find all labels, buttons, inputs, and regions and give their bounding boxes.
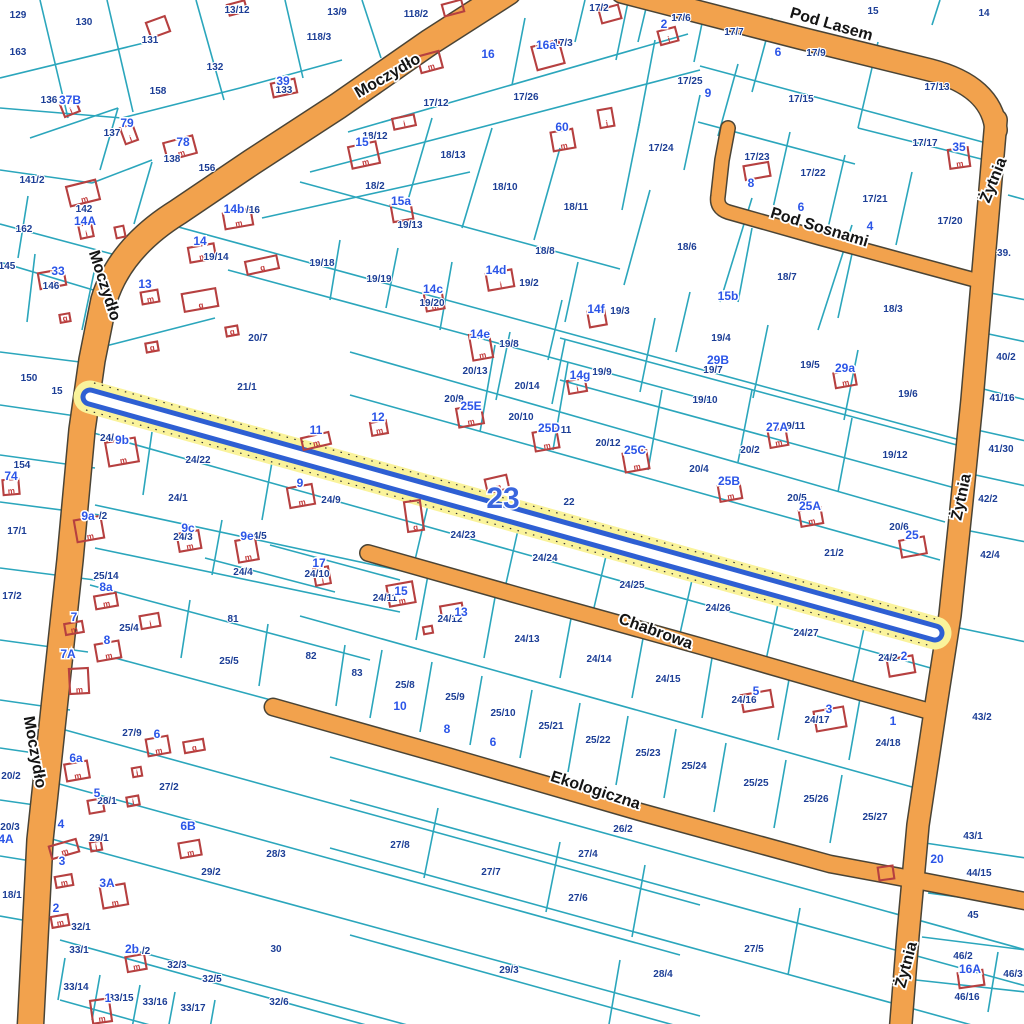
parcel-number-label: 29/1 <box>89 833 109 844</box>
parcel-number-label: 24/4 <box>233 567 253 578</box>
parcel-number-label: 17/1 <box>7 526 27 537</box>
parcel-number-label: 25/8 <box>395 680 415 691</box>
parcel-number-label: 27/7 <box>481 867 501 878</box>
building-number-label: 9 <box>297 476 304 490</box>
building-number-label: 14A <box>74 214 96 228</box>
parcel-number-label: 21/1 <box>237 382 257 393</box>
parcel-number-label: 19/10 <box>692 395 717 406</box>
parcel-number-label: 42/2 <box>978 494 998 505</box>
parcel-number-label: 43/1 <box>963 831 983 842</box>
parcel-number-label: 145 <box>0 261 16 272</box>
building-number-label: 35 <box>952 140 966 154</box>
parcel-number-label: 25/21 <box>538 721 563 732</box>
building-number-label: 13 <box>138 277 152 291</box>
parcel-number-label: 25/5 <box>219 656 239 667</box>
parcel-number-label: 19/13 <box>397 220 422 231</box>
building-number-label: 16a <box>536 38 556 52</box>
parcel-number-label: 33/16 <box>142 997 167 1008</box>
building-number-label: 16A <box>959 962 981 976</box>
building-number-label: 4 <box>867 219 874 233</box>
building-number-label: 8 <box>748 176 755 190</box>
building-number-label: 29a <box>835 361 855 375</box>
building-number-label: 6a <box>69 751 83 765</box>
parcel-number-label: 24/24 <box>532 553 557 564</box>
parcel-number-label: 27/2 <box>159 782 179 793</box>
parcel-number-label: 118/2 <box>404 9 429 20</box>
parcel-number-label: 17/7 <box>724 27 744 38</box>
parcel-number-label: 19/14 <box>203 252 228 263</box>
building-number-label: 9a <box>81 509 95 523</box>
building-number-label: 1 <box>105 991 112 1005</box>
building-number-label: 9b <box>115 433 129 447</box>
parcel-number-label: 46/2 <box>953 951 973 962</box>
building-number-label: 11 <box>310 423 323 437</box>
parcel-number-label: 158 <box>150 86 167 97</box>
parcel-number-label: 24/9 <box>321 495 341 506</box>
building-outline: i <box>132 767 143 778</box>
building-outline <box>423 626 433 634</box>
parcel-number-label: /2 <box>99 511 108 522</box>
parcel-number-label: 33/17 <box>180 1003 205 1014</box>
building-number-label: 3A <box>99 876 115 890</box>
building-number-label: 25C <box>624 443 646 457</box>
parcel-number-label: 141/2 <box>19 175 44 186</box>
parcel-number-label: 20/7 <box>248 333 268 344</box>
building-number-label: 3 <box>826 702 833 716</box>
parcel-number-label: 19/6 <box>898 389 918 400</box>
parcel-number-label: 40/2 <box>996 352 1016 363</box>
parcel-number-label: 25/27 <box>862 812 887 823</box>
building-function-letter: m <box>7 486 15 496</box>
parcel-number-label: 83 <box>351 668 363 679</box>
parcel-number-label: 19/3 <box>610 306 630 317</box>
parcel-number-label: 25/22 <box>585 735 610 746</box>
cadastral-map[interactable]: iimmimmggggmimimimmmgmimmmmmmmmmmmmmmmmi… <box>0 0 1024 1024</box>
building-number-label: 3 <box>59 854 66 868</box>
building-number-label: 6 <box>775 45 782 59</box>
parcel-number-label: 29/2 <box>201 867 221 878</box>
parcel-number-label: 18/3 <box>883 304 903 315</box>
building-number-label: 2b <box>125 942 139 956</box>
parcel-number-label: 138 <box>164 154 181 165</box>
parcel-number-label: 19/20 <box>419 298 444 309</box>
parcel-number-label: 26/2 <box>613 824 633 835</box>
parcel-number-label: 27/5 <box>744 944 764 955</box>
parcel-number-label: 45 <box>967 910 979 921</box>
building-number-label: 39 <box>276 74 290 88</box>
parcel-number-label: 17/20 <box>937 216 962 227</box>
parcel-number-label: 32/6 <box>269 997 289 1008</box>
building-number-label: 16 <box>481 47 495 61</box>
parcel-number-label: 25/25 <box>743 778 768 789</box>
parcel-number-label: 46/3 <box>1003 969 1023 980</box>
building-number-label: 14 <box>193 234 207 248</box>
parcel-number-label: 46/16 <box>954 992 979 1003</box>
parcel-number-label: 24/23 <box>450 530 475 541</box>
building-function-letter: m <box>76 685 84 694</box>
building-number-label: 74 <box>4 469 18 483</box>
parcel-number-label: 20/4 <box>689 464 709 475</box>
building-number-label: 7A <box>60 647 76 661</box>
building-number-label: 12 <box>371 410 385 424</box>
parcel-number-label: 17/26 <box>513 92 538 103</box>
parcel-number-label: 82 <box>305 651 317 662</box>
building-number-label: 2 <box>53 901 60 915</box>
parcel-number-label: 136 <box>41 95 58 106</box>
parcel-number-label: 13/9 <box>327 7 347 18</box>
parcel-number-label: 27/4 <box>578 849 598 860</box>
parcel-number-label: 118/3 <box>307 32 332 43</box>
building-number-label: 15 <box>355 135 369 149</box>
parcel-number-label: 24/17 <box>804 715 829 726</box>
parcel-number-label: 130 <box>76 17 93 28</box>
parcel-number-label: 22 <box>563 497 575 508</box>
parcel-number-label: 29/3 <box>499 965 519 976</box>
parcel-number-label: 11 <box>561 425 572 436</box>
building-number-label: 25D <box>538 421 560 435</box>
parcel-number-label: 20/2 <box>740 445 760 456</box>
parcel-number-label: 25/23 <box>635 748 660 759</box>
building-number-label: 25B <box>718 474 740 488</box>
building-function-letter: m <box>98 1014 106 1024</box>
parcel-number-label: 27/6 <box>568 893 588 904</box>
building-number-label: 79 <box>120 116 134 130</box>
parcel-number-label: 129 <box>10 10 27 21</box>
parcel-number-label: 163 <box>10 47 27 58</box>
parcel-number-label: 17/24 <box>648 143 673 154</box>
parcel-number-label: 24/2 <box>878 653 898 664</box>
parcel-number-label: 146 <box>43 281 60 292</box>
parcel-number-label: 18/11 <box>564 202 589 213</box>
building-number-label: 8a <box>99 580 113 594</box>
building-outline <box>114 226 125 239</box>
parcel-number-label: 17/9 <box>806 48 826 59</box>
parcel-number-label: 25/4 <box>119 623 139 634</box>
parcel-number-label: 33/15 <box>108 993 133 1004</box>
parcel-number-label: 27/9 <box>122 728 142 739</box>
building-number-label: 4 <box>58 817 65 831</box>
parcel-number-label: 162 <box>16 224 33 235</box>
parcel-number-label: 17/25 <box>677 76 702 87</box>
parcel-number-label: 27/8 <box>390 840 410 851</box>
parcel-number-label: 19/18 <box>309 258 334 269</box>
parcel-number-label: 32/5 <box>202 974 222 985</box>
building-number-label: 1 <box>890 714 897 728</box>
parcel-number-label: 20/13 <box>462 366 487 377</box>
parcel-number-label: 33/1 <box>69 945 89 956</box>
building-number-label: 6 <box>154 727 161 741</box>
parcel-number-label: 32/3 <box>167 960 187 971</box>
parcel-number-label: 17/2 <box>2 591 22 602</box>
parcel-number-label: 19/19 <box>366 274 391 285</box>
parcel-number-label: 24/1 <box>168 493 188 504</box>
parcel-number-label: 18/6 <box>677 242 697 253</box>
parcel-number-label: 137 <box>104 128 121 139</box>
parcel-number-label: 17/21 <box>862 194 887 205</box>
parcel-number-label: 44/15 <box>966 868 991 879</box>
building-number-label: 13 <box>454 605 468 619</box>
highlighted-parcel-number: 23 <box>486 482 519 515</box>
parcel-number-label: 18/2 <box>365 181 385 192</box>
parcel-number-label: 25/26 <box>803 794 828 805</box>
building-outline: g <box>59 313 70 324</box>
building-number-label: 6 <box>490 735 497 749</box>
parcel-number-label: 24/27 <box>793 628 818 639</box>
parcel-number-label: 20/12 <box>595 438 620 449</box>
building-number-label: 6B <box>180 819 196 833</box>
building-number-label: 27A <box>766 420 788 434</box>
building-number-label: 9e <box>240 529 254 543</box>
building-number-label: 25 <box>905 528 919 542</box>
building-outline: m <box>69 668 89 695</box>
parcel-number-label: 131 <box>142 35 159 46</box>
parcel-number-label: 42/4 <box>980 550 1000 561</box>
building-number-label: 17 <box>312 556 326 570</box>
building-number-label: 15a <box>391 194 411 208</box>
building-number-label: 29B <box>707 353 729 367</box>
building-number-label: 9c <box>181 521 195 535</box>
parcel-number-label: 15 <box>51 386 63 397</box>
building-number-label: 33 <box>51 264 65 278</box>
parcel-number-label: 18/7 <box>777 272 797 283</box>
parcel-number-label: 21/2 <box>824 548 844 559</box>
parcel-number-label: 13/12 <box>224 5 249 16</box>
building-number-label: 2 <box>661 17 668 31</box>
building-number-label: 25E <box>460 399 481 413</box>
parcel-number-label: 17/2 <box>589 3 609 14</box>
building-number-label: 2 <box>901 649 908 663</box>
parcel-number-label: 19/8 <box>499 339 519 350</box>
building-number-label: 60 <box>555 120 569 134</box>
parcel-number-label: 41/16 <box>989 393 1014 404</box>
parcel-number-label: 33/14 <box>63 982 88 993</box>
parcel-number-label: 19/9 <box>592 367 612 378</box>
parcel-number-label: 15 <box>867 6 879 17</box>
building-outline: g <box>404 500 424 533</box>
parcel-number-label: 39. <box>997 248 1011 259</box>
building-outline: g <box>225 326 239 338</box>
parcel-number-label: 19/4 <box>711 333 731 344</box>
parcel-number-label: 20/2 <box>1 771 21 782</box>
building-number-label: 8 <box>444 722 451 736</box>
parcel-number-label: /2 <box>142 946 151 957</box>
parcel-number-label: 20/14 <box>514 381 539 392</box>
building-number-label: 25A <box>799 499 821 513</box>
parcel-number-label: 24/15 <box>655 674 680 685</box>
highlighted-parcel-label: 23 <box>486 482 519 515</box>
building-number-label: 5 <box>753 684 760 698</box>
building-number-label: 14b <box>224 202 245 216</box>
parcel-number-label: 43/2 <box>972 712 992 723</box>
parcel-number-label: 17/17 <box>912 138 937 149</box>
parcel-number-label: 19/5 <box>800 360 820 371</box>
parcel-number-label: 25/9 <box>445 692 465 703</box>
parcel-number-label: 150 <box>21 373 38 384</box>
building-number-label: 4A <box>0 832 14 846</box>
parcel-number-label: 25/24 <box>681 761 706 772</box>
parcel-number-label: 28/4 <box>653 969 673 980</box>
parcel-number-label: 156 <box>199 163 216 174</box>
building-number-label: 7 <box>71 610 78 624</box>
parcel-number-label: 17/6 <box>671 13 691 24</box>
building-number-label: 14c <box>423 282 443 296</box>
building-number-label: 14d <box>486 263 507 277</box>
parcel-number-label: 24/13 <box>514 634 539 645</box>
building-number-label: 20 <box>930 852 944 866</box>
parcel-number-label: 19/12 <box>882 450 907 461</box>
building-number-label: 8 <box>104 633 111 647</box>
parcel-number-label: 24/26 <box>705 603 730 614</box>
parcel-number-label: 18/8 <box>535 246 555 257</box>
parcel-number-label: 17/22 <box>800 168 825 179</box>
parcel-number-label: 18/1 <box>2 890 22 901</box>
parcel-number-label: 17/23 <box>744 152 769 163</box>
parcel-number-label: /16 <box>246 205 260 216</box>
parcel-number-label: 20/10 <box>508 412 533 423</box>
building-number-label: 15 <box>394 584 408 598</box>
building-number-label: 14e <box>470 327 490 341</box>
building-outline: i <box>126 796 140 808</box>
parcel-number-label: 24/22 <box>185 455 210 466</box>
building-number-label: 78 <box>176 135 190 149</box>
building-outline <box>878 866 895 881</box>
building-number-label: 15b <box>718 289 739 303</box>
parcel-number-label: 24/ <box>100 433 114 444</box>
parcel-number-label: 30 <box>270 944 282 955</box>
parcel-number-label: 17/3 <box>553 38 573 49</box>
parcel-number-label: 17/13 <box>924 82 949 93</box>
parcel-number-label: 41/30 <box>988 444 1013 455</box>
parcel-number-label: 24/25 <box>619 580 644 591</box>
parcel-number-label: 81 <box>227 614 239 625</box>
building-number-label: 9 <box>705 86 712 100</box>
parcel-number-label: 28/3 <box>266 849 286 860</box>
building-number-label: 37B <box>59 93 81 107</box>
parcel-number-label: 132 <box>207 62 224 73</box>
building-outline: i <box>598 108 615 129</box>
parcel-number-label: 24/18 <box>875 738 900 749</box>
parcel-number-label: 19/2 <box>519 278 539 289</box>
parcel-number-label: 24/14 <box>586 654 611 665</box>
parcel-number-label: 24/10 <box>304 569 329 580</box>
building-number-label: 14g <box>570 368 591 382</box>
parcel-number-label: 18/13 <box>440 150 465 161</box>
building-number-label: 10 <box>393 699 407 713</box>
building-number-label: 5 <box>94 786 101 800</box>
map-canvas[interactable]: iimmimmggggmimimimmmgmimmmmmmmmmmmmmmmmi… <box>0 0 1024 1024</box>
building-number-label: 14f <box>587 302 605 316</box>
parcel-number-label: 25/10 <box>490 708 515 719</box>
building-outline: g <box>145 342 159 354</box>
parcel-number-label: 18/10 <box>492 182 517 193</box>
parcel-number-label: 17/15 <box>788 94 813 105</box>
parcel-number-label: 32/1 <box>71 922 91 933</box>
parcel-number-label: 17/12 <box>423 98 448 109</box>
parcel-number-label: 14 <box>978 8 990 19</box>
building-function-letter: m <box>956 159 964 169</box>
